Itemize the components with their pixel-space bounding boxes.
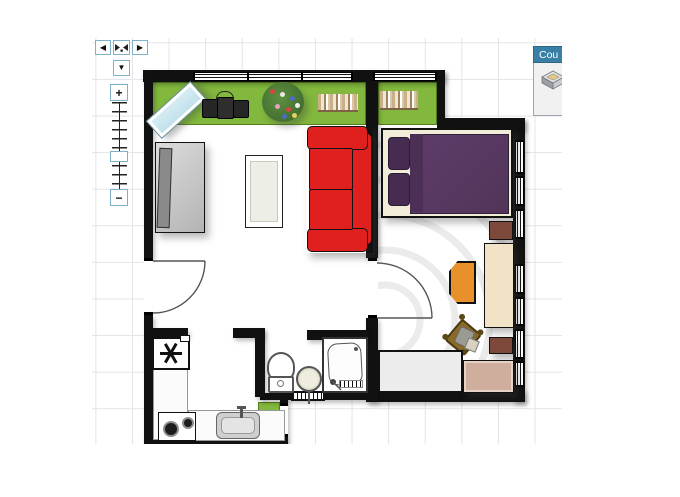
window-bedroom-1[interactable] [515,140,524,174]
wall-left-upper[interactable] [144,70,153,258]
red-sofa[interactable] [306,125,373,253]
minus-icon: − [115,192,122,204]
window-bedroom-3[interactable] [515,209,524,239]
toilet[interactable] [266,352,292,384]
tv-sideboard[interactable] [155,142,205,233]
bathroom-radiator[interactable] [291,391,325,401]
window-bedroom-4[interactable] [515,264,524,294]
tv-screen [157,148,173,228]
bedroom-desk[interactable] [484,243,514,328]
tooltip-body [533,63,562,116]
pan-down-icon: ▼ [118,64,126,72]
washbasin[interactable] [296,366,322,392]
pan-left-button[interactable]: ◀ [95,40,111,55]
zoom-slider-handle[interactable] [110,151,128,162]
bed-duvet [410,134,509,214]
orange-chair[interactable] [449,261,476,304]
pan-right-button[interactable]: ▶ [132,40,148,55]
window-bedroom-7[interactable] [515,361,524,387]
shower[interactable] [322,337,368,393]
plant-flowers [270,89,275,94]
nightstand-2[interactable] [489,337,513,354]
sofa-seat-2 [309,189,353,230]
shower-rail [339,380,363,388]
pillow-1 [388,137,410,170]
plus-icon: + [115,87,122,99]
flush-button [277,380,284,387]
fit-view-icon [115,42,128,53]
sofa-seat-1 [309,148,353,190]
zoom-out-button[interactable]: − [110,189,128,206]
pan-down-button[interactable]: ▼ [113,60,130,76]
fridge[interactable] [152,337,190,370]
book-row-right[interactable] [380,91,418,110]
pillow-2 [388,173,410,206]
cooktop[interactable] [158,412,196,441]
dresser[interactable] [463,360,514,393]
fridge-handle [180,335,190,342]
sofa-armrest-top [307,126,368,150]
wall-balcony-corner[interactable] [437,70,445,130]
floorplan-canvas[interactable]: ◀ ▶ ▼ + − Cou [92,38,562,444]
wall-bathroom-left[interactable] [255,328,265,397]
box-handle [216,91,234,101]
window-bedroom-5[interactable] [515,297,524,326]
pan-left-icon: ◀ [100,44,106,52]
sofa-3d-thumbnail-icon [538,67,562,93]
kitchen-sink[interactable] [216,412,260,439]
window-balcony-right-top[interactable] [373,72,437,81]
zoom-slider-track[interactable] [112,102,127,190]
tooltip-title: Cou [533,46,562,63]
coffee-table[interactable] [245,155,283,228]
storage-boxes[interactable] [202,96,248,118]
flowering-plant[interactable] [262,82,304,122]
entry-door-opening [144,258,153,315]
duvet-fold [410,134,423,212]
app-stage: ◀ ▶ ▼ + − Cou [0,0,680,497]
fit-view-button[interactable] [113,40,130,55]
shower-drain [354,347,358,351]
window-living-top[interactable] [193,72,353,81]
double-bed[interactable] [381,128,513,218]
sofa-armrest-bottom [307,228,368,252]
zoom-in-button[interactable]: + [110,84,128,101]
low-cabinet[interactable] [378,350,463,393]
window-bedroom-6[interactable] [515,329,524,359]
item-tooltip: Cou [533,46,562,116]
pan-right-icon: ▶ [137,44,143,52]
book-row-left[interactable] [318,94,358,112]
sink-faucet [240,408,243,418]
bedroom-door-opening [368,258,377,318]
window-bedroom-2[interactable] [515,176,524,206]
nightstand-1[interactable] [489,221,513,240]
